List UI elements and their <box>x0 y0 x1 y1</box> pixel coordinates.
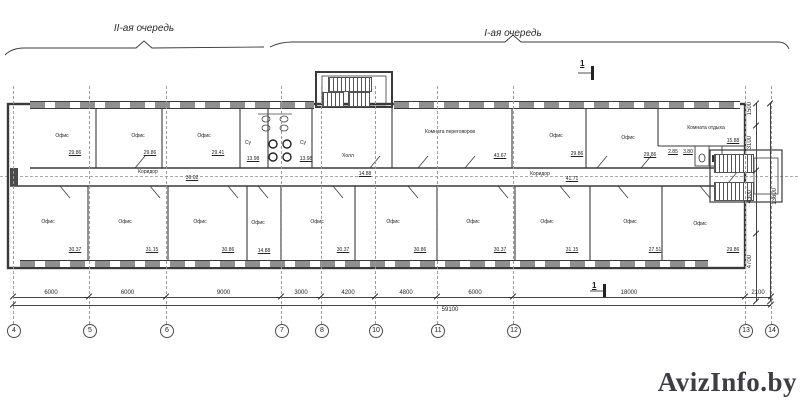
room-label: Офис <box>118 219 131 225</box>
dimension-tick <box>753 100 759 106</box>
grid-bubble: 11 <box>431 324 445 338</box>
grid-bubble: 13 <box>739 324 753 338</box>
grid-line <box>513 86 514 324</box>
grid-line <box>375 86 376 324</box>
dimension-label: 6000 <box>103 290 153 296</box>
room-area: 29.86 <box>571 151 584 157</box>
room-area: 13.98 <box>247 156 260 162</box>
room-area: 41.71 <box>566 176 579 182</box>
dimension-label-right: 4300 <box>747 190 753 203</box>
dimension-label: 4200 <box>323 290 373 296</box>
grid-bubble: 4 <box>7 324 21 338</box>
room-area: 29.86 <box>727 247 740 253</box>
grid-line <box>771 86 772 324</box>
room-area: 31.15 <box>566 247 579 253</box>
dimension-label: 6000 <box>26 290 76 296</box>
dimension-label: 3000 <box>276 290 326 296</box>
grid-line <box>281 86 282 324</box>
room-area: 2.85 <box>668 149 678 155</box>
dimension-tick <box>767 100 773 106</box>
dimension-label-right: 4700 <box>747 255 753 268</box>
room-label: Комната отдыха <box>687 125 725 131</box>
grid-line <box>166 86 167 324</box>
grid-bubble: 5 <box>83 324 97 338</box>
grid-bubble: 7 <box>275 324 289 338</box>
room-area: 30.86 <box>222 247 235 253</box>
room-area: 30.37 <box>494 247 507 253</box>
room-area: 43.67 <box>494 153 507 159</box>
room-label: Офис <box>540 219 553 225</box>
dimension-label: 4800 <box>381 290 431 296</box>
dimension-label-right: 1500 <box>747 102 753 115</box>
labels-layer: Офис29.86Офис29.86Офис29.41Су13.98Су13.9… <box>0 0 800 400</box>
dimension-label: 2100 <box>733 290 783 296</box>
room-area: 3.80 <box>683 149 693 155</box>
grid-bubble: 6 <box>160 324 174 338</box>
grid-line <box>89 86 90 324</box>
dimension-label: 18000 <box>604 290 654 296</box>
floor-plan-page: II-ая очередь I-ая очередь <box>0 0 800 400</box>
room-area: 14.88 <box>258 248 271 254</box>
room-area: 30.86 <box>414 247 427 253</box>
grid-line <box>13 86 14 324</box>
room-area: 14.88 <box>359 171 372 177</box>
room-label: Офис <box>621 135 634 141</box>
grid-bubble: 14 <box>765 324 779 338</box>
grid-line <box>437 86 438 324</box>
room-label: Холл <box>342 153 354 159</box>
room-label: Коридор <box>138 169 158 175</box>
dimension-tick <box>753 167 759 173</box>
dimension-label: 9000 <box>199 290 249 296</box>
grid-bubble: 12 <box>507 324 521 338</box>
room-label: Офис <box>466 219 479 225</box>
watermark: AvizInfo.by <box>658 367 797 398</box>
dimension-label-right: 3100 <box>747 136 753 149</box>
room-area: 29.41 <box>212 150 225 156</box>
room-label: Офис <box>693 221 706 227</box>
dimension-total-label-right: 13600 <box>772 188 778 205</box>
room-area: 29.86 <box>69 150 82 156</box>
grid-bubble: 8 <box>315 324 329 338</box>
dimension-tick <box>753 122 759 128</box>
room-label: Офис <box>193 219 206 225</box>
room-label: Офис <box>197 133 210 139</box>
room-label: Офис <box>623 219 636 225</box>
room-label: Офис <box>386 219 399 225</box>
room-label: Офис <box>55 133 68 139</box>
room-area: 15.88 <box>727 138 740 144</box>
room-area: 30.37 <box>69 247 82 253</box>
room-label: Офис <box>549 133 562 139</box>
room-label: Офис <box>251 220 264 226</box>
room-area: 29.86 <box>144 150 157 156</box>
room-label: Комната переговоров <box>425 129 475 135</box>
room-area: 31.15 <box>146 247 159 253</box>
room-label: Су <box>300 140 306 146</box>
room-label: Офис <box>41 219 54 225</box>
dimension-total-label: 59100 <box>425 307 475 313</box>
dimension-label: 6000 <box>450 290 500 296</box>
room-area: 36.02 <box>186 175 199 181</box>
room-area: 30.37 <box>337 247 350 253</box>
room-area: 27.51 <box>649 247 662 253</box>
grid-line <box>745 86 746 324</box>
room-label: Коридор <box>530 171 550 177</box>
grid-line <box>321 86 322 324</box>
dimension-tick <box>753 230 759 236</box>
room-label: Офис <box>131 133 144 139</box>
room-label: Су <box>245 140 251 146</box>
room-area: 29.86 <box>644 152 657 158</box>
dimension-tick <box>753 298 759 304</box>
room-area: 13.98 <box>300 156 313 162</box>
grid-bubble: 10 <box>369 324 383 338</box>
